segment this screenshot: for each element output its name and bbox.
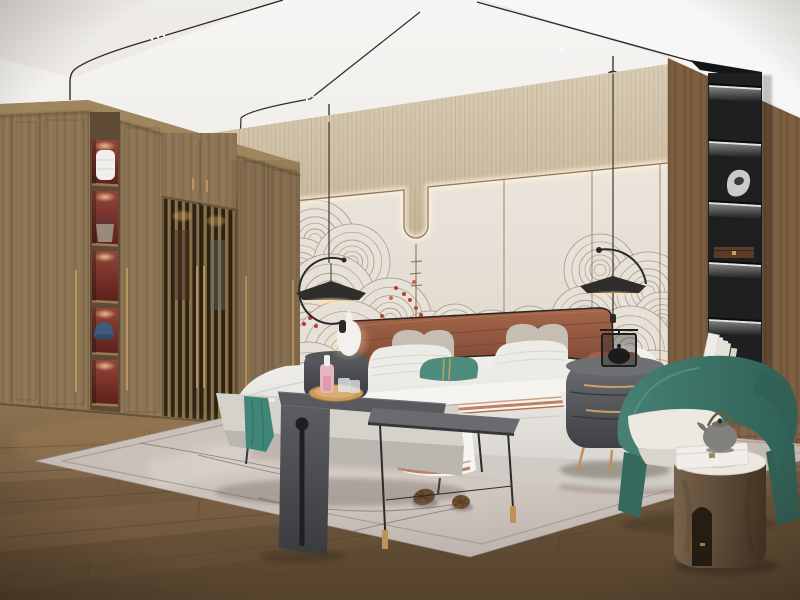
bedroom-photo-stage (0, 0, 800, 600)
bedroom-photo (0, 0, 800, 600)
vignette (0, 0, 800, 600)
